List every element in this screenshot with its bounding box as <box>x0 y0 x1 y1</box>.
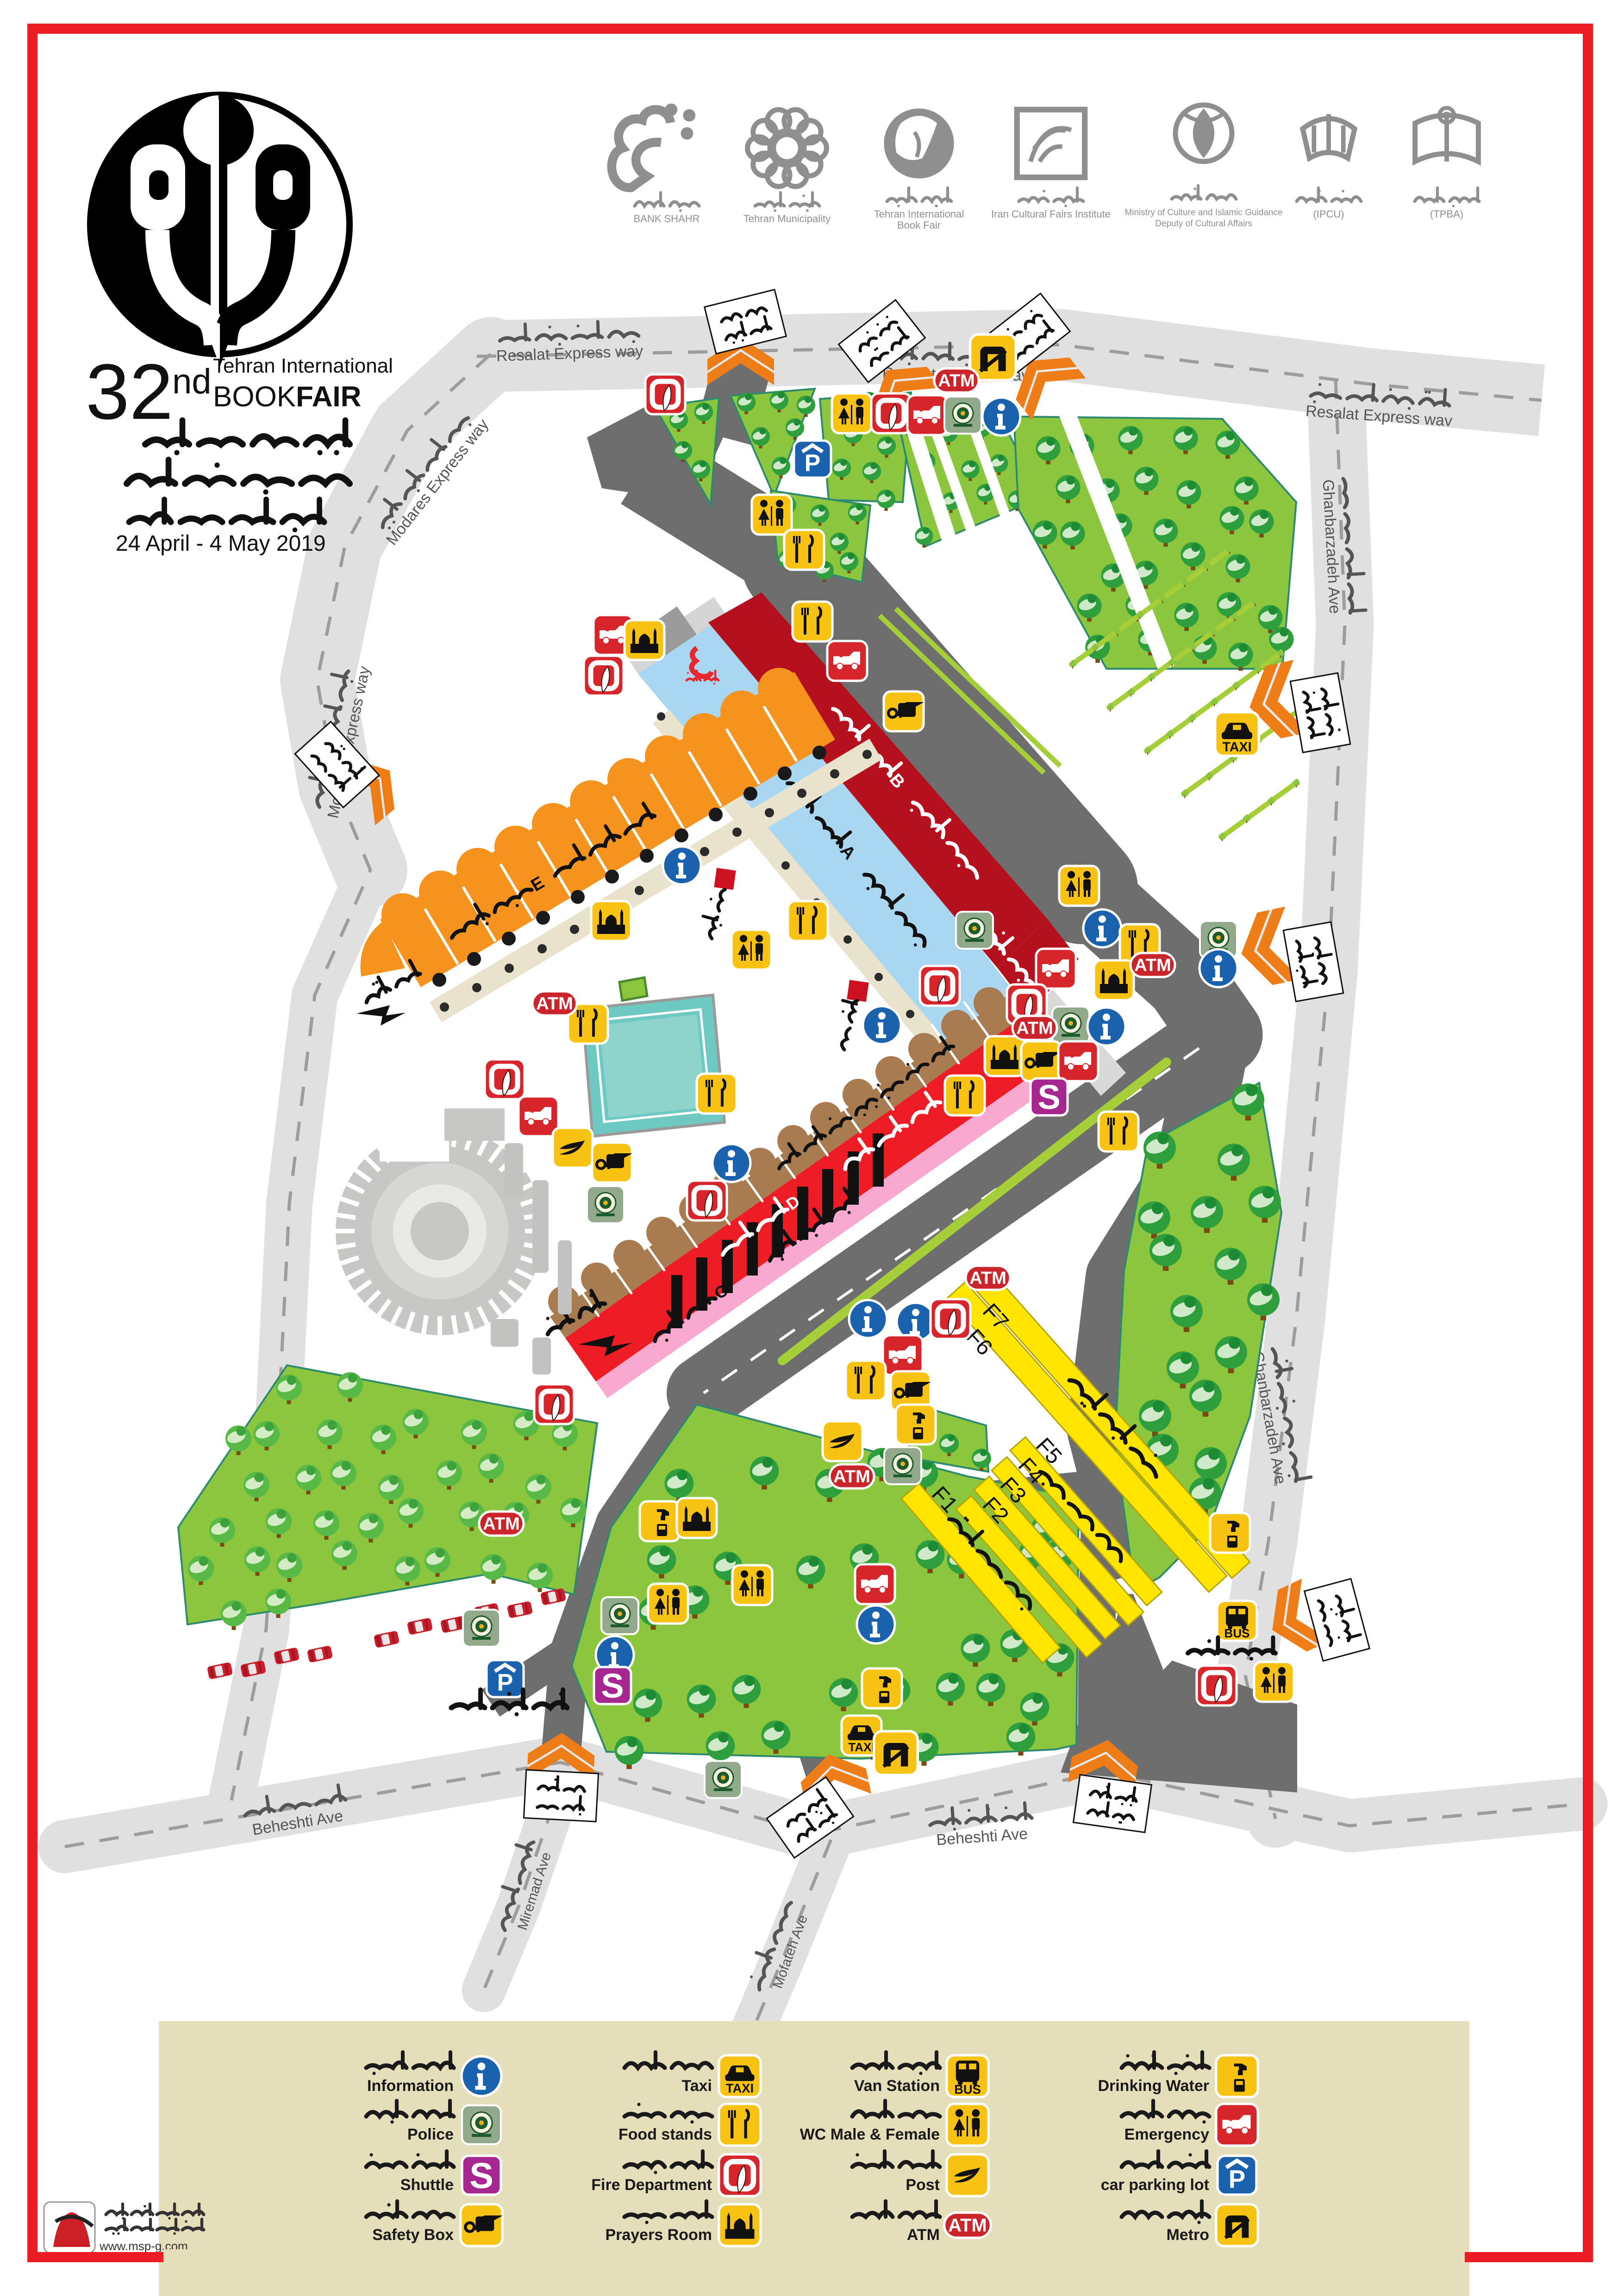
svg-text:Drinking Water: Drinking Water <box>1098 2077 1209 2095</box>
svg-text:Ministry of Culture and Islami: Ministry of Culture and Islamic Guidance <box>1124 208 1282 218</box>
svg-text:BOOKFAIR: BOOKFAIR <box>213 381 361 413</box>
svg-text:(TPBA): (TPBA) <box>1430 208 1463 220</box>
svg-text:Iran Cultural Fairs Institute: Iran Cultural Fairs Institute <box>991 208 1111 220</box>
svg-text:Deputy of Cultural Affairs: Deputy of Cultural Affairs <box>1155 219 1252 229</box>
svg-text:32: 32 <box>86 348 173 436</box>
svg-text:24 April - 4 May 2019: 24 April - 4 May 2019 <box>116 531 326 556</box>
svg-text:BANK SHAHR: BANK SHAHR <box>633 213 700 224</box>
svg-text:Prayers Room: Prayers Room <box>605 2226 712 2244</box>
svg-text:Van Station: Van Station <box>854 2077 940 2095</box>
svg-text:Metro: Metro <box>1166 2226 1209 2244</box>
svg-text:nd: nd <box>172 362 212 401</box>
svg-text:car parking lot: car parking lot <box>1101 2176 1209 2194</box>
svg-text:Fire Department: Fire Department <box>591 2176 712 2194</box>
svg-text:ATM: ATM <box>907 2226 940 2244</box>
svg-text:WC Male & Female: WC Male & Female <box>800 2126 940 2143</box>
svg-text:Post: Post <box>906 2176 940 2194</box>
svg-text:Information: Information <box>367 2077 454 2095</box>
svg-text:Food stands: Food stands <box>618 2126 712 2143</box>
svg-text:Safety Box: Safety Box <box>372 2226 454 2244</box>
svg-text:Taxi: Taxi <box>681 2077 712 2095</box>
svg-text:Book Fair: Book Fair <box>897 219 941 231</box>
svg-text:Tehran International: Tehran International <box>213 355 393 377</box>
svg-text:Shuttle: Shuttle <box>400 2176 454 2194</box>
svg-text:Tehran International: Tehran International <box>874 208 964 220</box>
svg-text:Emergency: Emergency <box>1124 2126 1209 2143</box>
svg-text:(IPCU): (IPCU) <box>1313 208 1344 220</box>
svg-text:Police: Police <box>407 2126 454 2143</box>
svg-text:Tehran Municipality: Tehran Municipality <box>743 213 831 224</box>
